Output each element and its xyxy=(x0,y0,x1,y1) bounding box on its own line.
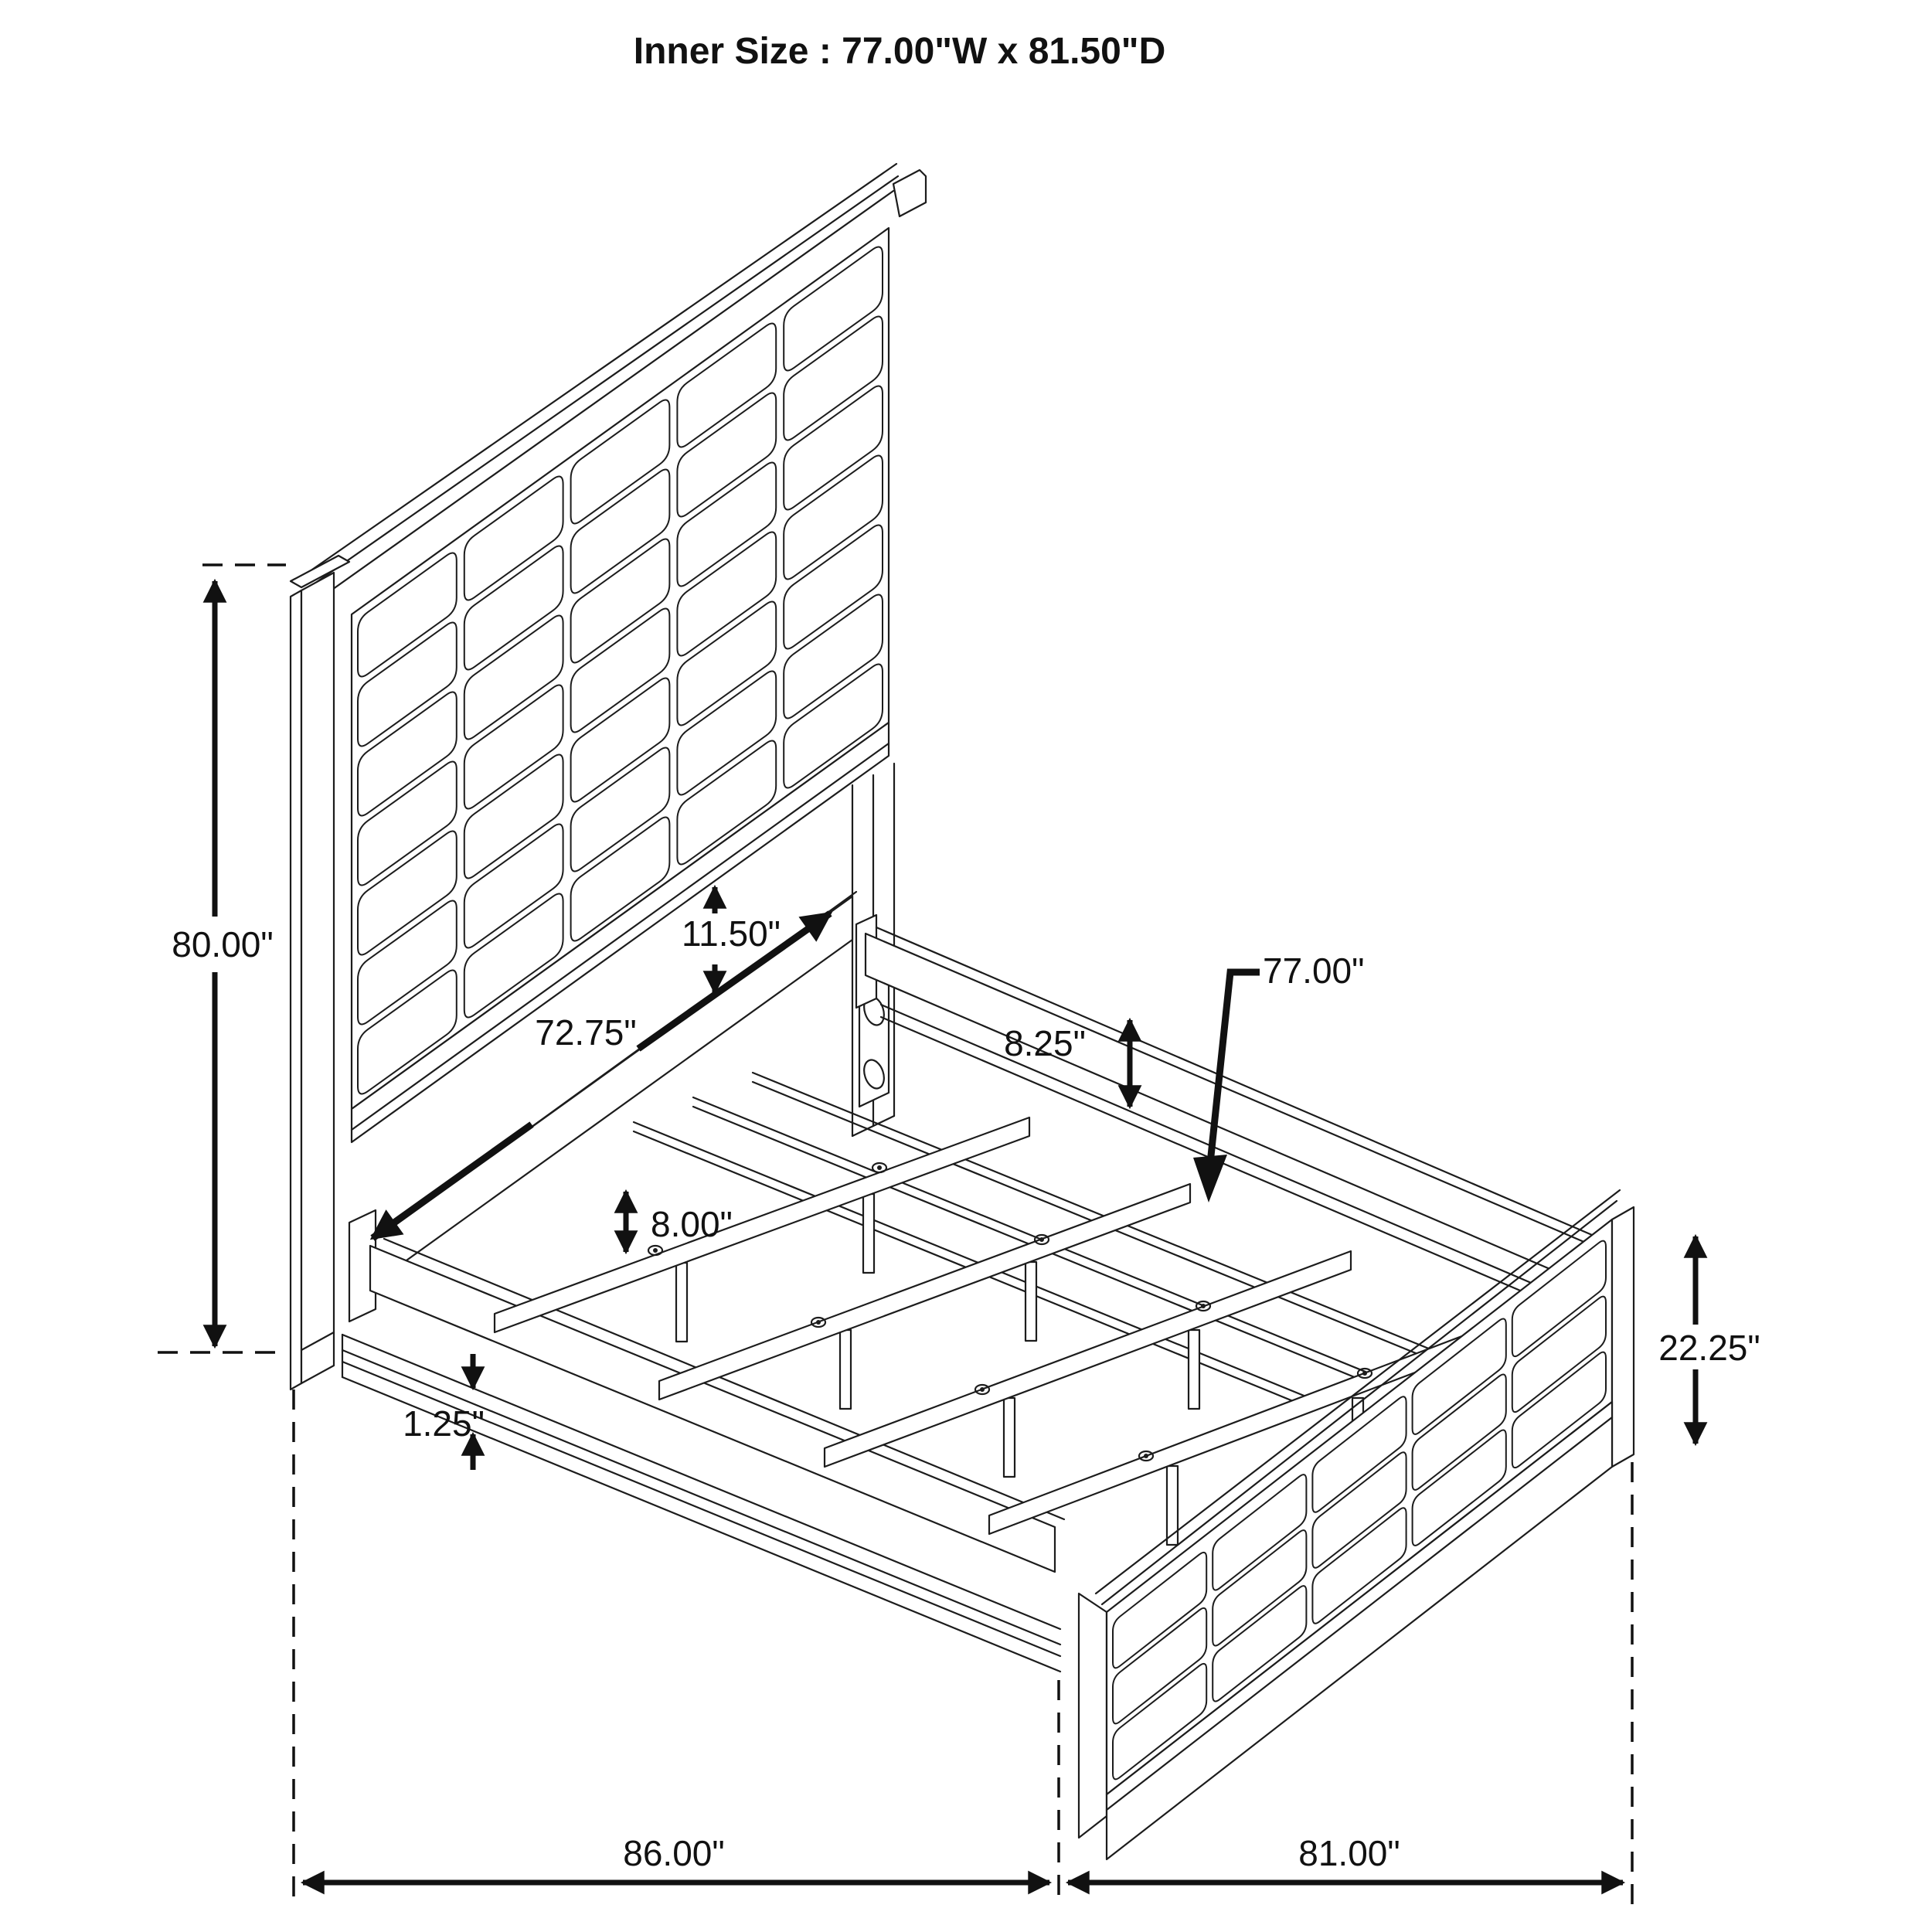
technical-drawing-page: 80.00" 11.50" 72.75" 8.25" 77.00" 8.00" … xyxy=(0,0,1932,1932)
slat-leg xyxy=(1189,1330,1199,1409)
dimension-footboard-height: 22.25" xyxy=(1658,1236,1760,1444)
dim-label-slat-length: 77.00" xyxy=(1263,951,1364,991)
slat xyxy=(495,1117,1029,1332)
page-title: Inner Size : 77.00"W x 81.50"D xyxy=(634,31,1165,72)
dimension-overall-width: 81.00" xyxy=(1068,1833,1623,1883)
slat xyxy=(825,1251,1351,1467)
slat-leg xyxy=(1004,1398,1015,1477)
bed-dimension-diagram: 80.00" 11.50" 72.75" 8.25" 77.00" 8.00" … xyxy=(0,0,1932,1932)
dimension-base-lip: 1.25" xyxy=(403,1354,485,1470)
dim-label-base-lip: 1.25" xyxy=(403,1403,485,1444)
headboard-left-post-side xyxy=(291,590,301,1389)
right-side-rail xyxy=(856,915,1592,1320)
slat-leg xyxy=(1026,1262,1036,1341)
dimension-overall-length: 86.00" xyxy=(303,1833,1049,1883)
slat-leg xyxy=(863,1194,874,1273)
headboard-left-post xyxy=(301,573,334,1383)
dimension-headboard-height: 80.00" xyxy=(158,565,286,1352)
footboard xyxy=(1079,1190,1634,1859)
dim-label-footboard-height: 22.25" xyxy=(1658,1328,1760,1368)
dimension-leg-height: 8.00" xyxy=(626,1192,733,1252)
dim-label-panel-to-rail: 11.50" xyxy=(682,913,781,954)
slat-leg xyxy=(676,1263,687,1342)
dim-label-rail-to-slat: 8.25" xyxy=(1004,1023,1086,1063)
slat xyxy=(659,1184,1190,1400)
dim-label-overall-width: 81.00" xyxy=(1298,1833,1400,1873)
dim-label-side-rail-length: 72.75" xyxy=(535,1012,636,1053)
slat-leg xyxy=(1167,1466,1178,1545)
footboard-right-side xyxy=(1612,1207,1634,1467)
footboard-left-cap xyxy=(1079,1594,1107,1838)
dim-label-overall-length: 86.00" xyxy=(623,1833,724,1873)
dim-label-leg-height: 8.00" xyxy=(651,1204,733,1244)
slat-leg xyxy=(840,1330,851,1409)
leader-arrowhead xyxy=(1193,1155,1227,1202)
dim-label-headboard-height: 80.00" xyxy=(172,924,273,964)
